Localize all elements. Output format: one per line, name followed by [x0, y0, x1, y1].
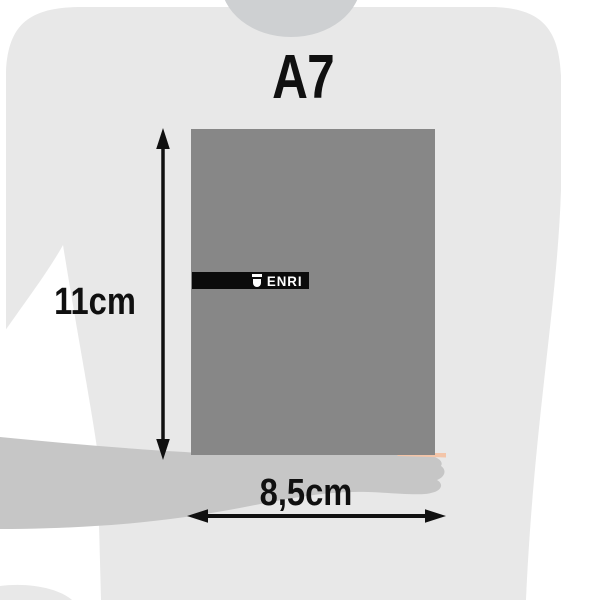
- width-arrow: [187, 509, 446, 523]
- height-arrowhead-top: [156, 128, 170, 149]
- height-arrowhead-bottom: [156, 439, 170, 460]
- dimension-arrows: [0, 0, 600, 600]
- height-arrow: [156, 128, 170, 460]
- product-dimension-diagram: ENRI A7 11cm 8,5cm: [0, 0, 600, 600]
- width-arrowhead-right: [425, 509, 446, 523]
- width-arrowhead-left: [187, 509, 208, 523]
